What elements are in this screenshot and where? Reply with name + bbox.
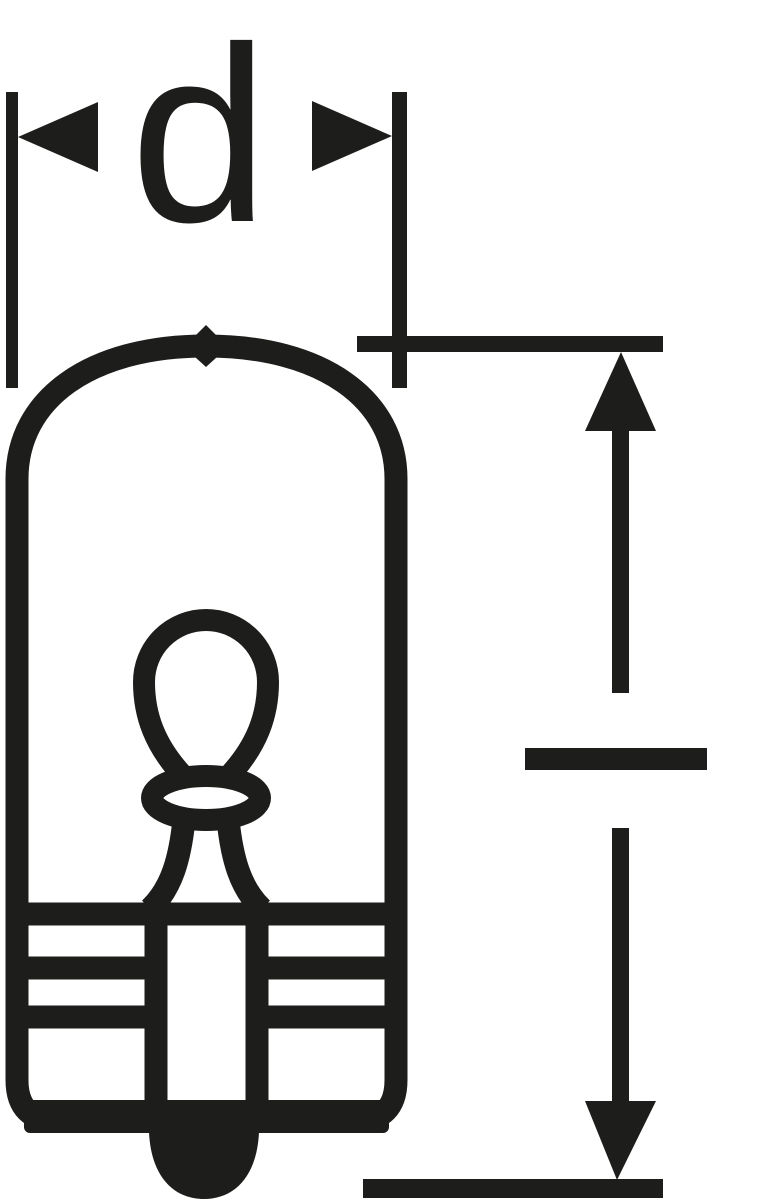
filament-loop — [144, 620, 268, 779]
base-stripes — [17, 968, 396, 1017]
filament-leg-right — [228, 820, 262, 909]
length-mid-tick — [525, 748, 707, 770]
base-bottom-bar — [24, 1100, 389, 1133]
arrow-right-icon — [312, 101, 392, 171]
diameter-label: d — [130, 0, 269, 274]
bulb-dimension-diagram: d — [0, 0, 761, 1200]
arrow-up-icon — [585, 352, 656, 431]
length-line-lower-shaft — [612, 828, 629, 1105]
length-line-upper-shaft — [612, 424, 629, 693]
arrow-down-icon — [585, 1101, 656, 1180]
filament-bead — [152, 776, 260, 820]
length-reference-line-top — [357, 336, 663, 352]
length-reference-line-bottom — [363, 1179, 663, 1198]
filament-leg-left — [150, 820, 184, 909]
length-dimension — [357, 336, 707, 1198]
diameter-extension-line-left — [6, 92, 18, 388]
diagram-canvas: d — [0, 0, 761, 1200]
bulb-outline — [17, 346, 396, 1121]
bulb-drawing — [17, 325, 396, 1199]
glass-tip-nipple — [184, 325, 228, 367]
arrow-left-icon — [18, 102, 98, 172]
wedge-tip — [149, 1132, 259, 1199]
